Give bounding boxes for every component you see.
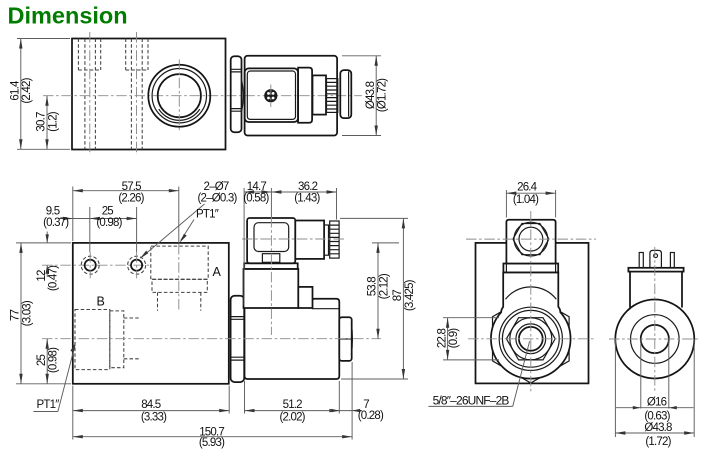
svg-text:25: 25 [102, 206, 114, 218]
svg-text:(1.72): (1.72) [645, 436, 671, 448]
svg-text:5/8″–26UNF–2B: 5/8″–26UNF–2B [433, 396, 510, 408]
svg-text:(0.98): (0.98) [48, 347, 60, 373]
svg-text:(2–Ø0.3): (2–Ø0.3) [198, 193, 238, 205]
svg-text:(3.33): (3.33) [141, 412, 167, 424]
svg-text:14.7: 14.7 [247, 181, 267, 193]
svg-text:26.4: 26.4 [517, 182, 538, 194]
svg-text:B: B [97, 295, 105, 309]
svg-text:36.2: 36.2 [298, 181, 318, 193]
svg-text:87: 87 [392, 290, 404, 302]
svg-text:(0.37): (0.37) [43, 217, 69, 229]
svg-text:61.4: 61.4 [9, 80, 21, 101]
svg-text:PT1″: PT1″ [37, 399, 60, 411]
svg-text:(5.93): (5.93) [199, 437, 225, 449]
svg-text:77: 77 [10, 310, 22, 322]
svg-text:(0.98): (0.98) [96, 217, 122, 229]
svg-text:(2.42): (2.42) [21, 77, 33, 103]
svg-text:9.5: 9.5 [46, 206, 60, 218]
svg-text:25: 25 [36, 355, 48, 367]
svg-text:Ø43.8: Ø43.8 [365, 81, 377, 109]
svg-text:Ø16: Ø16 [647, 396, 667, 408]
svg-text:(1.2): (1.2) [47, 111, 59, 132]
svg-text:(0.58): (0.58) [243, 193, 269, 205]
svg-text:(Ø1.72): (Ø1.72) [377, 78, 389, 112]
svg-text:12: 12 [36, 270, 48, 282]
svg-text:(1.43): (1.43) [294, 193, 320, 205]
svg-text:Dimension: Dimension [8, 3, 128, 29]
svg-text:53.8: 53.8 [367, 277, 379, 297]
svg-text:(0.63): (0.63) [644, 411, 670, 423]
svg-text:(3.425): (3.425) [404, 279, 416, 311]
svg-text:PT1″: PT1″ [196, 209, 219, 221]
svg-text:(3.03): (3.03) [21, 300, 33, 326]
svg-text:22.8: 22.8 [436, 329, 448, 349]
svg-text:A: A [213, 265, 222, 279]
svg-text:57.5: 57.5 [122, 181, 142, 193]
svg-text:(2.12): (2.12) [378, 273, 390, 299]
svg-text:(1.04): (1.04) [513, 194, 539, 206]
svg-text:2–Ø7: 2–Ø7 [204, 181, 229, 193]
svg-text:30.7: 30.7 [36, 112, 48, 132]
svg-text:Ø43.8: Ø43.8 [644, 422, 672, 434]
svg-text:51.2: 51.2 [283, 399, 303, 411]
svg-text:(0.9): (0.9) [448, 328, 460, 349]
svg-text:84.5: 84.5 [141, 399, 161, 411]
svg-text:(2.02): (2.02) [279, 412, 305, 424]
svg-text:(0.28): (0.28) [358, 410, 384, 422]
svg-text:(0.47): (0.47) [48, 265, 60, 291]
svg-text:(2.26): (2.26) [118, 193, 144, 205]
